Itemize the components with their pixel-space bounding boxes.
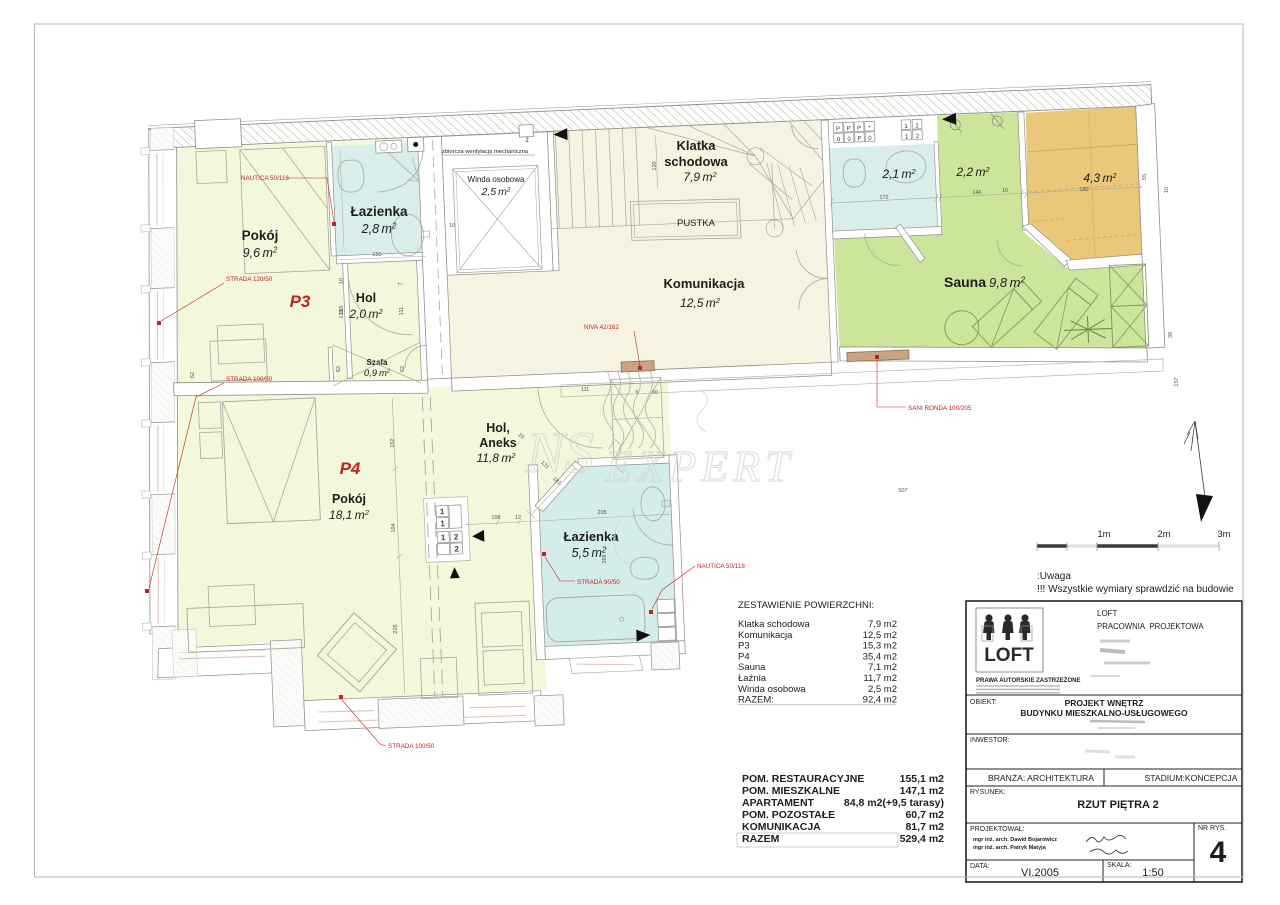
svg-text:7,1 m2: 7,1 m2 [868, 662, 897, 673]
svg-text:P: P [857, 136, 861, 142]
svg-text:zbiorcza wentylacja mechaniczn: zbiorcza wentylacja mechaniczna [442, 149, 529, 155]
svg-text:10: 10 [449, 223, 455, 229]
svg-text:2m: 2m [1157, 529, 1170, 540]
svg-text:RYSUNEK:: RYSUNEK: [970, 789, 1006, 796]
svg-text:LOFT: LOFT [984, 645, 1034, 666]
svg-text:162: 162 [390, 438, 396, 447]
svg-text:Łaźnia: Łaźnia [738, 673, 767, 684]
svg-text:EXPERT: EXPERT [605, 442, 795, 491]
svg-text:157: 157 [1174, 377, 1180, 386]
svg-text:120: 120 [652, 161, 658, 170]
svg-text:12: 12 [515, 515, 521, 521]
svg-text::Uwaga: :Uwaga [1037, 571, 1071, 582]
svg-text:Aneks: Aneks [479, 436, 517, 450]
svg-text:P3: P3 [738, 641, 750, 652]
svg-text:POM. MIESZKALNE: POM. MIESZKALNE [742, 785, 840, 797]
svg-text:155,1 m2: 155,1 m2 [900, 773, 945, 785]
svg-text:!!! Wszystkie wymiary sprawdzi: !!! Wszystkie wymiary sprawdzić na budow… [1037, 584, 1234, 595]
svg-text:Klatka schodowa: Klatka schodowa [738, 619, 811, 630]
svg-text:104: 104 [391, 523, 397, 532]
svg-text:81,7 m2: 81,7 m2 [905, 821, 944, 833]
svg-text:2,8 m2: 2,8 m2 [361, 222, 397, 236]
svg-text:SANI RONDA 100/205: SANI RONDA 100/205 [908, 405, 972, 412]
svg-text:Winda osobowa: Winda osobowa [738, 684, 806, 695]
svg-text:15,3 m2: 15,3 m2 [863, 641, 897, 652]
svg-text:Winda osobowa: Winda osobowa [468, 175, 525, 184]
svg-text:125: 125 [339, 309, 345, 318]
svg-text:NR RYS.: NR RYS. [1198, 825, 1226, 832]
svg-text:RAZEM: RAZEM [742, 833, 780, 845]
svg-text:PROJEKTOWAŁ:: PROJEKTOWAŁ: [970, 826, 1025, 833]
svg-text:STRADA 120/50: STRADA 120/50 [226, 276, 273, 283]
svg-text:OBIEKT:: OBIEKT: [970, 699, 997, 706]
svg-text:STADIUM:KONCEPCJA: STADIUM:KONCEPCJA [1145, 773, 1238, 783]
svg-text:POM. POZOSTAŁE: POM. POZOSTAŁE [742, 809, 835, 821]
svg-text:4,3 m2: 4,3 m2 [1083, 171, 1116, 185]
svg-text:ZESTAWIENIE POWIERZCHNI:: ZESTAWIENIE POWIERZCHNI: [738, 600, 874, 611]
svg-text:111: 111 [581, 387, 589, 393]
svg-text:2,5 m2: 2,5 m2 [480, 186, 510, 198]
svg-text:18,1 m2: 18,1 m2 [329, 508, 369, 522]
svg-text:11,8 m2: 11,8 m2 [477, 451, 516, 465]
svg-text:KOMUNIKACJA: KOMUNIKACJA [742, 821, 821, 833]
svg-text:3m: 3m [1217, 529, 1230, 540]
svg-text:62: 62 [400, 366, 406, 372]
svg-text:PUSTKA: PUSTKA [677, 218, 716, 229]
svg-text:2,2 m2: 2,2 m2 [955, 165, 989, 179]
svg-text:P4: P4 [340, 459, 361, 478]
svg-text:507: 507 [898, 488, 907, 494]
svg-text:RAZEM:: RAZEM: [738, 695, 774, 706]
svg-text:STRADA 90/50: STRADA 90/50 [577, 579, 620, 586]
svg-text:Łazienka: Łazienka [564, 529, 620, 544]
svg-text:Sauna: Sauna [738, 662, 766, 673]
svg-text:PRAWA AUTORSKIE ZASTRZEŻONE: PRAWA AUTORSKIE ZASTRZEŻONE [976, 677, 1080, 684]
svg-text:9,8 m2: 9,8 m2 [989, 275, 1026, 290]
svg-text:2,0 m2: 2,0 m2 [348, 307, 382, 321]
svg-text:Hol: Hol [356, 291, 376, 305]
svg-text:92,4 m2: 92,4 m2 [863, 695, 897, 706]
svg-text:10: 10 [1002, 188, 1008, 194]
svg-text:P3: P3 [290, 292, 311, 311]
svg-text:RZUT PIĘTRA 2: RZUT PIĘTRA 2 [1077, 799, 1159, 811]
svg-text:P: P [847, 126, 851, 132]
svg-text:Łazienka: Łazienka [350, 204, 408, 219]
svg-text:150: 150 [372, 252, 381, 258]
svg-text:55: 55 [1142, 174, 1148, 180]
svg-text:DATA:: DATA: [970, 863, 990, 870]
svg-text:4: 4 [1210, 836, 1227, 869]
svg-text:Klatka: Klatka [676, 138, 716, 153]
svg-text:Hol,: Hol, [486, 421, 510, 435]
svg-text:Szafa: Szafa [367, 358, 388, 367]
svg-text:180: 180 [1079, 187, 1088, 193]
svg-text:0,9 m2: 0,9 m2 [364, 368, 391, 379]
svg-text:schodowa: schodowa [664, 154, 728, 169]
svg-text:POM. RESTAURACYJNE: POM. RESTAURACYJNE [742, 773, 864, 785]
svg-text:60,7 m2: 60,7 m2 [905, 809, 944, 821]
svg-text:INWESTOR:: INWESTOR: [970, 737, 1010, 744]
svg-text:10: 10 [339, 278, 345, 284]
svg-text:205: 205 [597, 510, 606, 516]
svg-text:P: P [836, 127, 840, 133]
svg-text:NIVA 42/162: NIVA 42/162 [584, 324, 619, 331]
svg-text:12,5 m2: 12,5 m2 [863, 630, 897, 641]
svg-text:PRACOWNIA PROJEKTOWA: PRACOWNIA PROJEKTOWA [1097, 622, 1204, 631]
svg-text:LOFT: LOFT [1097, 609, 1118, 618]
svg-text:35,4 m2: 35,4 m2 [863, 651, 897, 662]
svg-text:Pokój: Pokój [242, 228, 279, 243]
svg-text:9,6 m2: 9,6 m2 [243, 246, 278, 260]
svg-text:6: 6 [635, 390, 638, 396]
svg-text:BRANŻA: ARCHITEKTURA: BRANŻA: ARCHITEKTURA [988, 773, 1094, 783]
svg-text:84,8 m2(+9,5 tarasy): 84,8 m2(+9,5 tarasy) [844, 797, 944, 809]
svg-text:62: 62 [336, 366, 342, 372]
svg-text:PROJEKT WNĘTRZ: PROJEKT WNĘTRZ [1065, 698, 1144, 708]
svg-text:STRADA 100/50: STRADA 100/50 [226, 376, 273, 383]
svg-text:SKALA:: SKALA: [1107, 862, 1132, 869]
svg-text:11,7 m2: 11,7 m2 [863, 673, 897, 684]
svg-text:529,4 m2: 529,4 m2 [900, 833, 945, 845]
svg-text:P4: P4 [738, 651, 750, 662]
svg-text:108: 108 [491, 515, 500, 521]
svg-text:BUDYNKU MIESZKALNO-USŁUGOWEGO: BUDYNKU MIESZKALNO-USŁUGOWEGO [1020, 708, 1188, 718]
svg-text:10: 10 [1164, 187, 1170, 193]
svg-text:NAUTICA 50/118: NAUTICA 50/118 [697, 563, 745, 570]
svg-text:mgr inż. arch. Dawid Bojarowic: mgr inż. arch. Dawid Bojarowicz [973, 837, 1057, 843]
svg-text:269: 269 [602, 554, 608, 563]
svg-text:12,5 m2: 12,5 m2 [680, 296, 720, 310]
svg-text:226: 226 [393, 624, 399, 633]
svg-text:2,1 m2: 2,1 m2 [881, 167, 915, 181]
svg-text:NAUTICA 50/116: NAUTICA 50/116 [241, 175, 289, 182]
svg-text:7,9 m2: 7,9 m2 [868, 619, 897, 630]
svg-text:mgr inż. arch. Patryk Matyja: mgr inż. arch. Patryk Matyja [973, 845, 1047, 851]
svg-text:Komunikacja: Komunikacja [664, 276, 746, 291]
svg-text:1m: 1m [1097, 529, 1110, 540]
svg-text:STRADA 100/50: STRADA 100/50 [388, 743, 435, 750]
svg-text:7,9 m2: 7,9 m2 [683, 170, 716, 184]
svg-text:147,1 m2: 147,1 m2 [900, 785, 945, 797]
svg-text:NS: NS [525, 420, 594, 485]
svg-text:Komunikacja: Komunikacja [738, 630, 793, 641]
svg-text:62: 62 [190, 372, 196, 378]
svg-text:2,5 m2: 2,5 m2 [868, 684, 897, 695]
svg-text:172: 172 [879, 195, 888, 201]
svg-text:7: 7 [398, 282, 404, 285]
svg-text:38: 38 [1168, 332, 1174, 338]
svg-text:111: 111 [399, 307, 405, 315]
svg-text:Pokój: Pokój [332, 492, 366, 506]
svg-text:APARTAMENT: APARTAMENT [742, 797, 815, 809]
svg-text:P: P [857, 126, 861, 132]
svg-text:Sauna: Sauna [944, 274, 986, 290]
svg-text:146: 146 [972, 190, 981, 196]
